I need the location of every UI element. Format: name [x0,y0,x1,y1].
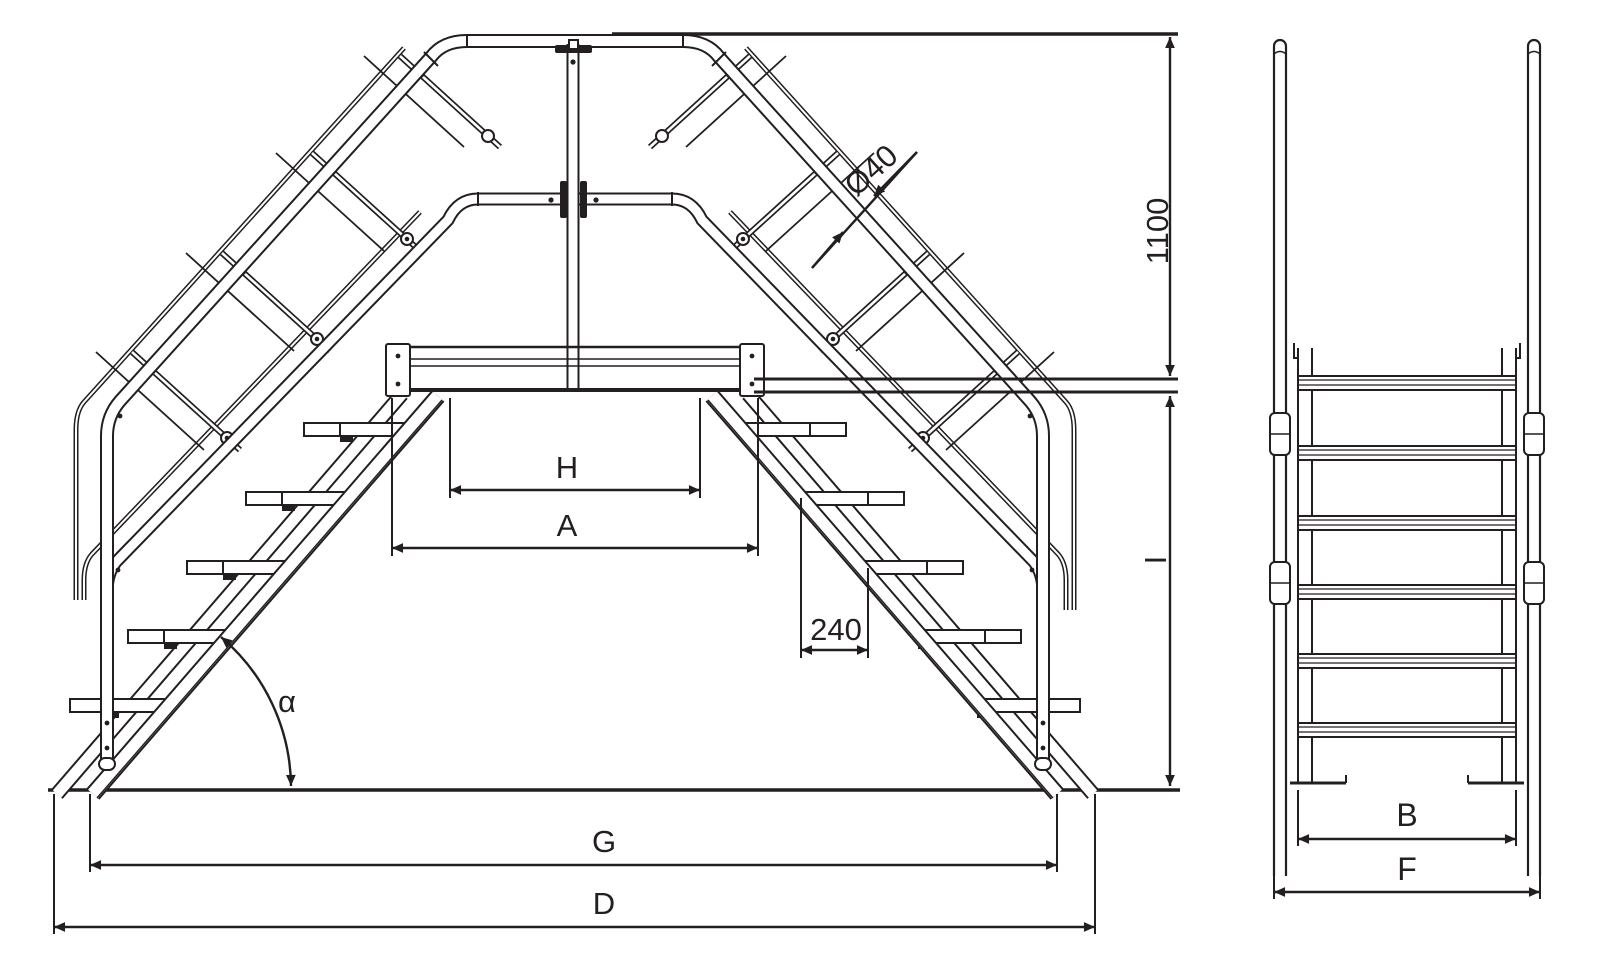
dimension-F: F [1274,851,1540,899]
dimension-B: B [1298,790,1516,846]
dimension-H: H [450,398,700,498]
dimension-I: I [1138,396,1173,786]
dimension-alpha: α [221,637,296,786]
inner-span-label: G [592,824,616,859]
platform-width-label: A [557,508,578,543]
incline-angle-label: α [278,684,296,719]
center-post [548,40,598,390]
side-treads [1298,376,1516,737]
front-view: H A 240 α G D [48,34,1180,934]
side-stringers [1290,343,1524,783]
clear-width-label: H [556,450,578,485]
handrail-height-label: 1100 [1140,198,1175,265]
stair-overall-width-label: F [1397,851,1417,887]
platform-height-label: I [1138,556,1173,565]
stair-inner-width-label: B [1396,797,1417,833]
side-view: B F [1270,40,1544,899]
technical-drawing-page: H A 240 α G D [0,0,1600,960]
crossover-stair-drawing: H A 240 α G D [0,0,1600,960]
dimension-G: G [90,794,1057,872]
overall-span-label: D [593,886,615,921]
tread-depth-label: 240 [810,612,862,647]
